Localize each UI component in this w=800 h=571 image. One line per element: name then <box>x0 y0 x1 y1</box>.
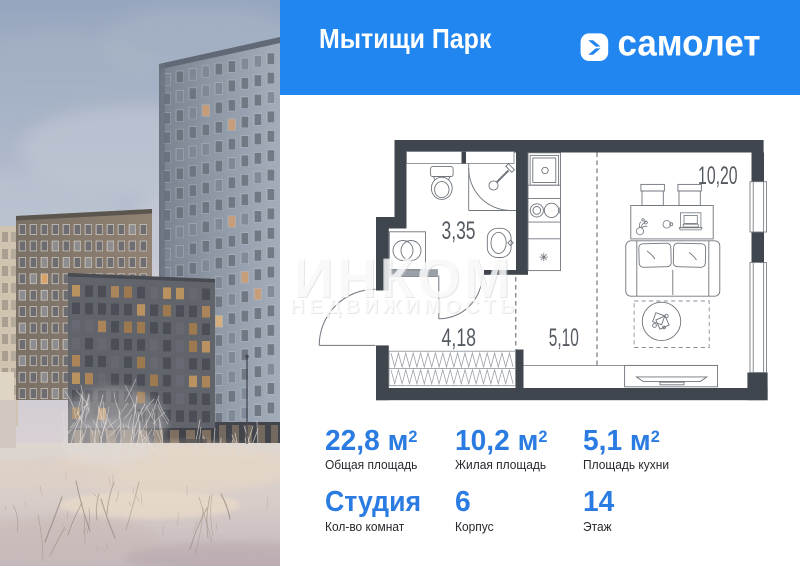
svg-text:3,35: 3,35 <box>442 217 476 245</box>
svg-text:10,20: 10,20 <box>698 162 738 190</box>
svg-text:самолет: самолет <box>618 32 761 63</box>
svg-text:5,10: 5,10 <box>549 324 579 352</box>
svg-text:НЕДВИЖИМОСТЬ: НЕДВИЖИМОСТЬ <box>290 295 518 318</box>
svg-text:4,18: 4,18 <box>442 324 477 352</box>
